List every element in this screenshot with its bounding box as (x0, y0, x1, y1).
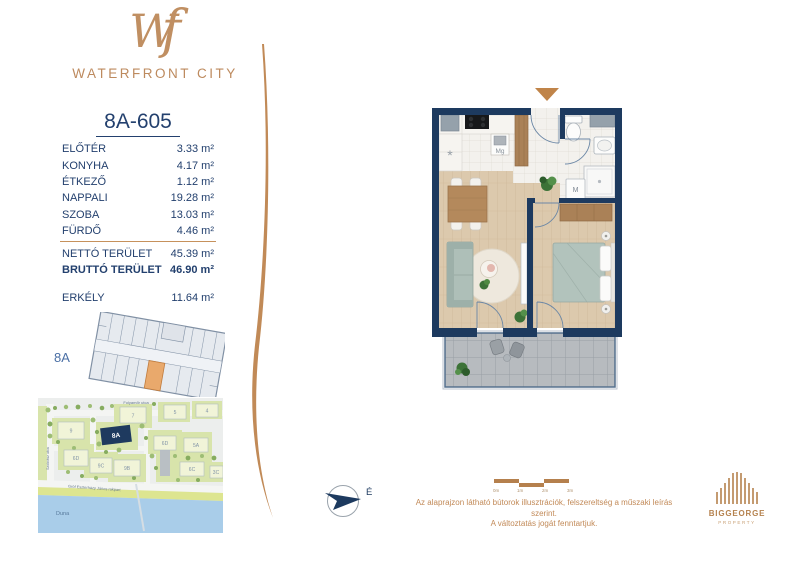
room-label: ÉTKEZŐ (62, 176, 106, 188)
map-street-top: Folyamőr utca (123, 400, 149, 405)
dining-table (448, 186, 487, 222)
disclaimer-line1: Az alaprajzon látható bútorok illusztrác… (416, 498, 673, 518)
map-building-label: 3C (213, 470, 220, 476)
biggeorge-logo: BIGGEORGE PROPERTY (695, 462, 780, 528)
map-building-label: 7 (132, 414, 135, 420)
tall-cabinet (521, 243, 527, 304)
table-row: NAPPALI 19.28 m² (62, 190, 214, 206)
map-building-label: 6D (73, 456, 80, 462)
brochure-page: Wf WATERFRONT CITY 8A-605 ELŐTÉR 3.33 m²… (0, 0, 800, 565)
unit-id-title: 8A-605 (62, 110, 214, 137)
map-highlight-building: 8A (100, 425, 132, 446)
pillow (600, 276, 611, 301)
cooktop (465, 115, 489, 129)
dresser (560, 204, 612, 221)
net-label: NETTÓ TERÜLET (62, 248, 152, 260)
map-building-label: 4 (206, 409, 209, 415)
scale-tick: 0m (493, 488, 500, 493)
scale-tick: 1m (517, 488, 524, 493)
map-building-label: 6D (162, 441, 169, 447)
dining-set (448, 178, 487, 230)
map-building-label: 6C (189, 467, 196, 473)
crown-icon (717, 472, 757, 504)
developer-division: PROPERTY (718, 520, 755, 525)
building-key-plan: 8A (40, 312, 225, 397)
toilet (565, 116, 582, 123)
divider-curve (243, 42, 287, 522)
gross-area-row: BRUTTÓ TERÜLET 46.90 m² (62, 262, 214, 278)
disclaimer-line2: A változtatás jogát fenntartjuk. (491, 519, 598, 528)
room-area: 19.28 m² (171, 192, 214, 204)
compass-icon: É (320, 477, 384, 529)
site-map: 9 7 5 4 6D 9C 9B 6D 5A 6C 3C 8A Folyamőr… (38, 398, 223, 533)
bed (553, 243, 605, 302)
key-plan-building-label: 8A (54, 350, 70, 365)
table-row: ÉTKEZŐ 1.12 m² (62, 174, 214, 190)
kitchen-shaft (441, 115, 459, 131)
table-row: ELŐTÉR 3.33 m² (62, 141, 214, 157)
net-area-row: NETTÓ TERÜLET 45.39 m² (62, 245, 214, 261)
pillow (600, 246, 611, 271)
net-area: 45.39 m² (171, 248, 214, 260)
map-river-label: Duna (56, 511, 70, 517)
room-area: 1.12 m² (177, 176, 214, 188)
gross-area: 46.90 m² (170, 264, 214, 276)
table-row: FÜRDŐ 4.46 m² (62, 223, 214, 239)
map-street-left: Szobrász utca (46, 447, 50, 470)
svg-text:8A: 8A (112, 432, 121, 440)
balcony (443, 331, 617, 389)
scale-bar: 0m 1m 2m 3m (493, 477, 577, 495)
map-building-label: 9 (70, 429, 73, 435)
map-building-label: 5 (174, 410, 177, 416)
room-label: NAPPALI (62, 192, 108, 204)
bedroom (553, 204, 615, 314)
table-row: SZOBA 13.03 m² (62, 207, 214, 223)
room-label: SZOBA (62, 209, 99, 221)
microwave-label: Mg (495, 148, 504, 155)
logo-monogram-f: f (162, 0, 181, 60)
balcony-area-row: ERKÉLY 11.64 m² (62, 290, 214, 306)
room-area: 4.46 m² (177, 225, 214, 237)
map-building-label: 9B (124, 466, 131, 472)
map-building-label: 9C (98, 464, 105, 470)
scale-tick: 3m (567, 488, 574, 493)
compass-north-label: É (366, 487, 372, 498)
washer-label: M (573, 187, 579, 194)
room-label: KONYHA (62, 160, 108, 172)
room-area: 13.03 m² (171, 209, 214, 221)
map-building-label: 5A (193, 443, 200, 449)
balcony-table (504, 355, 511, 362)
entry-arrow-icon (535, 88, 559, 101)
room-area-table: ELŐTÉR 3.33 m² KONYHA 4.17 m² ÉTKEZŐ 1.1… (62, 141, 214, 307)
fridge-label: * (447, 147, 453, 163)
gross-label: BRUTTÓ TERÜLET (62, 264, 162, 276)
table-divider (60, 241, 216, 242)
floor-plan: * Mg M (425, 85, 625, 392)
bathroom-shaft (590, 114, 615, 127)
balcony-label: ERKÉLY (62, 292, 105, 304)
room-label: FÜRDŐ (62, 225, 101, 237)
disclaimer: Az alaprajzon látható bútorok illusztrác… (405, 498, 683, 530)
room-area: 3.33 m² (177, 143, 214, 155)
balcony-area: 11.64 m² (171, 292, 214, 304)
entry-wardrobe (515, 115, 528, 166)
room-area: 4.17 m² (177, 160, 214, 172)
scale-tick: 2m (542, 488, 549, 493)
developer-name: BIGGEORGE (709, 509, 766, 518)
room-label: ELŐTÉR (62, 143, 106, 155)
table-row: KONYHA 4.17 m² (62, 157, 214, 173)
